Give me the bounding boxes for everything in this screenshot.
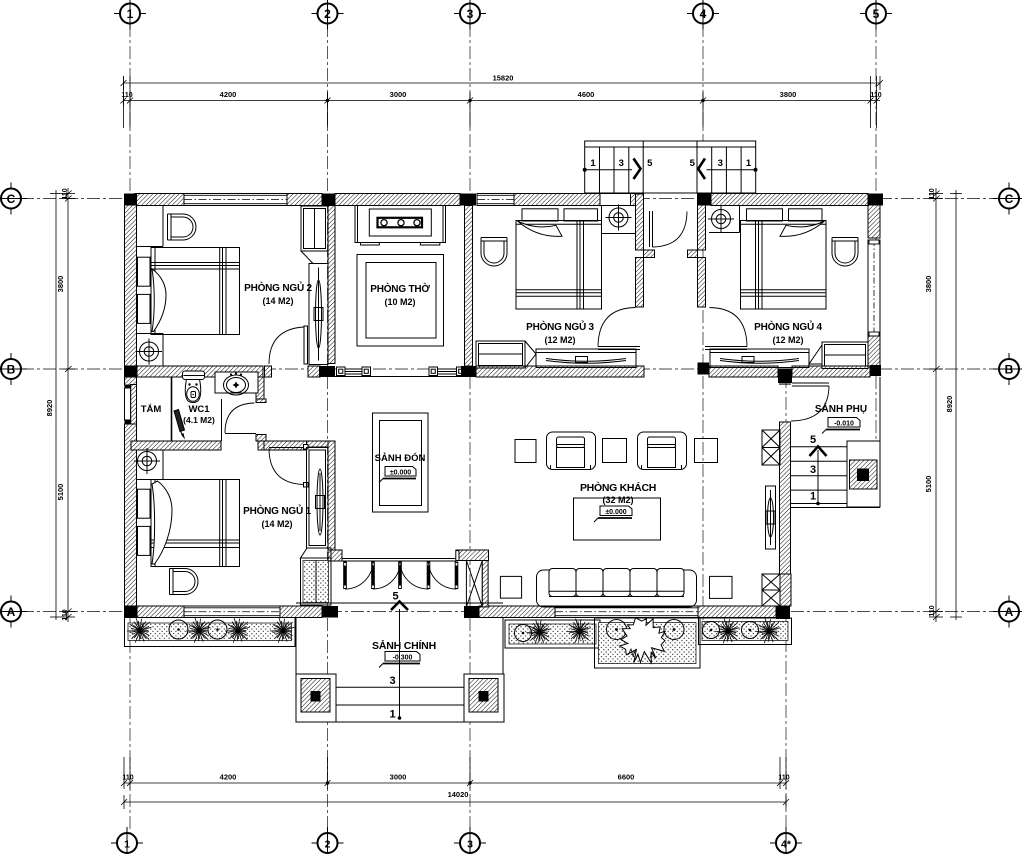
svg-text:3: 3 (467, 7, 474, 21)
svg-text:SẢNH PHỤ: SẢNH PHỤ (815, 402, 867, 415)
svg-text:B: B (7, 362, 16, 376)
svg-text:4600: 4600 (578, 90, 595, 99)
svg-text:-0.010: -0.010 (834, 420, 854, 427)
svg-text:4200: 4200 (220, 773, 237, 782)
svg-text:5: 5 (810, 434, 816, 446)
svg-text:4: 4 (700, 7, 707, 21)
svg-text:PHÒNG THỜ: PHÒNG THỜ (370, 282, 430, 295)
svg-text:B: B (1005, 362, 1014, 376)
svg-text:4*: 4* (781, 838, 792, 850)
svg-text:A: A (7, 605, 16, 619)
svg-text:1: 1 (746, 158, 752, 169)
svg-text:(14 M2): (14 M2) (262, 296, 293, 306)
svg-text:TẮM: TẮM (141, 404, 162, 415)
svg-text:C: C (1005, 192, 1014, 206)
svg-text:5: 5 (690, 158, 696, 169)
svg-text:1: 1 (810, 491, 816, 503)
svg-text:PHÒNG NGỦ 1: PHÒNG NGỦ 1 (243, 504, 311, 517)
svg-text:(12 M2): (12 M2) (544, 335, 575, 345)
svg-text:3: 3 (389, 675, 395, 687)
svg-text:1: 1 (127, 7, 134, 21)
svg-text:8920: 8920 (945, 396, 954, 413)
svg-text:SẢNH ĐÓN: SẢNH ĐÓN (375, 452, 426, 464)
svg-text:110: 110 (870, 92, 881, 99)
svg-text:3000: 3000 (390, 773, 407, 782)
svg-text:5: 5 (392, 591, 398, 603)
svg-text:(10 M2): (10 M2) (384, 297, 415, 307)
svg-text:14020: 14020 (448, 790, 469, 799)
svg-text:±0.000: ±0.000 (390, 469, 411, 476)
svg-text:110: 110 (929, 605, 936, 616)
svg-text:(32 M2): (32 M2) (602, 495, 633, 505)
svg-text:5: 5 (873, 7, 880, 21)
svg-text:6600: 6600 (618, 773, 635, 782)
svg-text:PHÒNG NGỦ 4: PHÒNG NGỦ 4 (754, 320, 822, 333)
svg-text:WC1: WC1 (188, 404, 210, 415)
svg-text:3: 3 (718, 158, 723, 169)
svg-text:1: 1 (124, 838, 130, 850)
svg-text:1: 1 (590, 158, 596, 169)
svg-text:-0.300: -0.300 (393, 654, 413, 661)
svg-text:110: 110 (778, 775, 789, 782)
svg-text:110: 110 (929, 188, 936, 199)
svg-text:8920: 8920 (45, 400, 54, 417)
svg-text:1: 1 (389, 709, 395, 721)
svg-text:(4.1 M2): (4.1 M2) (183, 415, 215, 425)
svg-text:110: 110 (62, 609, 69, 620)
svg-text:3800: 3800 (924, 276, 933, 293)
svg-text:(14 M2): (14 M2) (261, 519, 292, 529)
svg-text:PHÒNG NGỦ 3: PHÒNG NGỦ 3 (526, 320, 594, 333)
svg-text:A: A (1005, 605, 1014, 619)
svg-text:3800: 3800 (56, 276, 65, 293)
svg-text:SẢNH CHÍNH: SẢNH CHÍNH (372, 639, 436, 652)
svg-text:3: 3 (619, 158, 624, 169)
svg-text:C: C (7, 192, 16, 206)
svg-text:3800: 3800 (780, 90, 797, 99)
svg-text:±0.000: ±0.000 (605, 509, 626, 516)
svg-text:(12 M2): (12 M2) (772, 335, 803, 345)
svg-text:2: 2 (325, 838, 331, 850)
svg-text:110: 110 (62, 188, 69, 199)
svg-text:110: 110 (122, 775, 133, 782)
svg-text:PHÒNG KHÁCH: PHÒNG KHÁCH (580, 481, 656, 494)
svg-text:3000: 3000 (390, 90, 407, 99)
svg-text:4200: 4200 (220, 90, 237, 99)
svg-text:3: 3 (467, 838, 473, 850)
svg-text:3: 3 (810, 464, 816, 476)
svg-text:5: 5 (647, 158, 653, 169)
svg-text:2: 2 (324, 7, 331, 21)
svg-text:5100: 5100 (924, 476, 933, 493)
svg-text:110: 110 (121, 92, 132, 99)
svg-text:5100: 5100 (56, 484, 65, 501)
svg-text:PHÒNG NGỦ 2: PHÒNG NGỦ 2 (244, 281, 312, 294)
svg-text:15820: 15820 (493, 74, 514, 83)
